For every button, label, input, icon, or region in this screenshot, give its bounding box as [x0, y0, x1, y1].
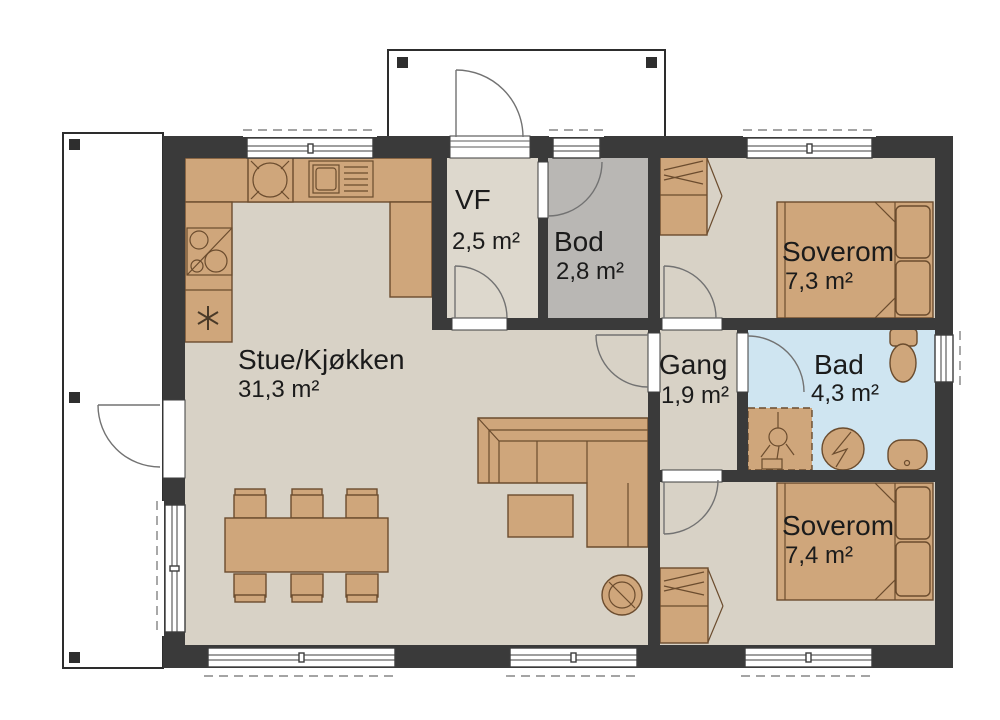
gang-soverom2-opening — [662, 470, 722, 482]
window-living-west — [156, 501, 185, 636]
window-bod — [549, 129, 604, 158]
wall-living-soverom2 — [648, 482, 660, 645]
porch-post — [397, 57, 408, 68]
porch-post — [646, 57, 657, 68]
wall-vf-west — [432, 158, 447, 330]
room-area-soverom2: 7,4 m² — [785, 542, 853, 569]
wall-bod-soverom1 — [648, 158, 660, 330]
toilet-icon — [890, 329, 917, 382]
dining-table — [225, 518, 388, 572]
cooktop-icon — [248, 158, 293, 202]
chair — [347, 595, 377, 602]
window-living-right — [506, 648, 641, 677]
room-label-bad: Bad — [814, 349, 864, 380]
wood-stove-icon — [602, 575, 642, 615]
terrace-post — [69, 392, 80, 403]
washing-machine-icon — [822, 428, 864, 470]
pillow — [896, 261, 930, 315]
washbasin-icon — [888, 440, 927, 470]
chair — [234, 495, 266, 518]
chair — [292, 595, 322, 602]
room-label-vf: VF — [455, 184, 491, 215]
chair — [234, 574, 266, 597]
pillow — [896, 487, 930, 539]
wall-exterior-right — [935, 136, 953, 668]
vf-door-opening — [452, 318, 507, 330]
chair — [291, 574, 323, 597]
floor-plan: Stue/Kjøkken 31,3 m² VF 2,5 m² Bod 2,8 m… — [0, 0, 1000, 720]
window-soverom2 — [741, 648, 876, 677]
room-label-gang: Gang — [659, 349, 728, 380]
room-label-soverom1: Soverom — [782, 236, 894, 267]
window-kitchen — [243, 129, 377, 158]
bod-door-opening — [538, 162, 548, 218]
room-area-bod: 2,8 m² — [556, 258, 624, 285]
coffee-table — [508, 495, 573, 537]
chair — [291, 495, 323, 518]
pillow — [896, 542, 930, 596]
pillow — [896, 206, 930, 258]
chair — [346, 574, 378, 597]
terrace-door-opening — [163, 400, 185, 478]
window-soverom1 — [743, 129, 876, 158]
room-label-stue: Stue/Kjøkken — [238, 344, 405, 375]
window-living-left — [204, 648, 399, 677]
room-label-bod: Bod — [554, 226, 604, 257]
room-area-bad: 4,3 m² — [811, 380, 879, 407]
room-area-stue: 31,3 m² — [238, 376, 319, 403]
chair — [235, 595, 265, 602]
entrance-porch — [388, 50, 665, 138]
terrace-post — [69, 139, 80, 150]
room-label-soverom2: Soverom — [782, 510, 894, 541]
window-bad — [935, 331, 962, 386]
dining-set — [225, 489, 388, 602]
chair — [346, 495, 378, 518]
room-area-soverom1: 7,3 m² — [785, 268, 853, 295]
terrace-post — [69, 652, 80, 663]
shower-icon — [748, 408, 812, 470]
gang-bad-opening — [737, 333, 748, 392]
terrace — [63, 133, 163, 668]
gang-soverom1-opening — [662, 318, 722, 330]
room-area-vf: 2,5 m² — [452, 228, 520, 255]
room-area-gang: 1,9 m² — [661, 382, 729, 409]
